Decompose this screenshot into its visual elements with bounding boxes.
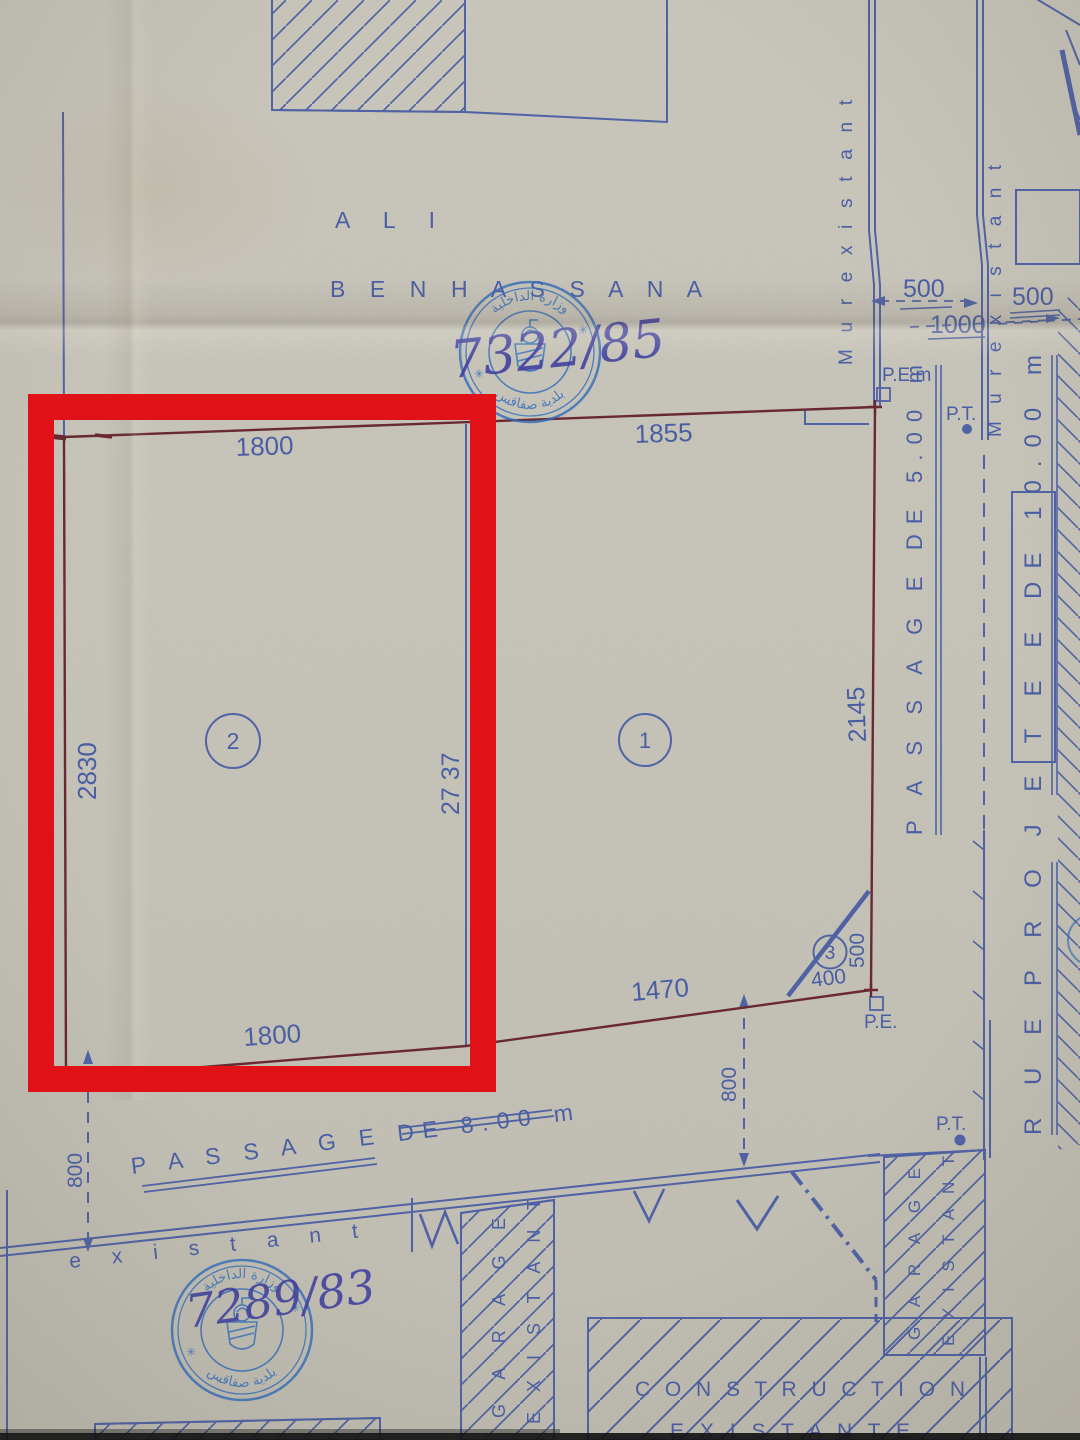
blueprint-photo: A L I B E N H A S S A N A 1800 2830 27 3… — [0, 0, 1080, 1440]
photo-edge-bar — [0, 1433, 1080, 1440]
photo-edge-bar-left — [0, 1429, 560, 1434]
blueprint-plan: A L I B E N H A S S A N A 1800 2830 27 3… — [0, 0, 1080, 1440]
paper-creases — [0, 0, 1080, 1440]
